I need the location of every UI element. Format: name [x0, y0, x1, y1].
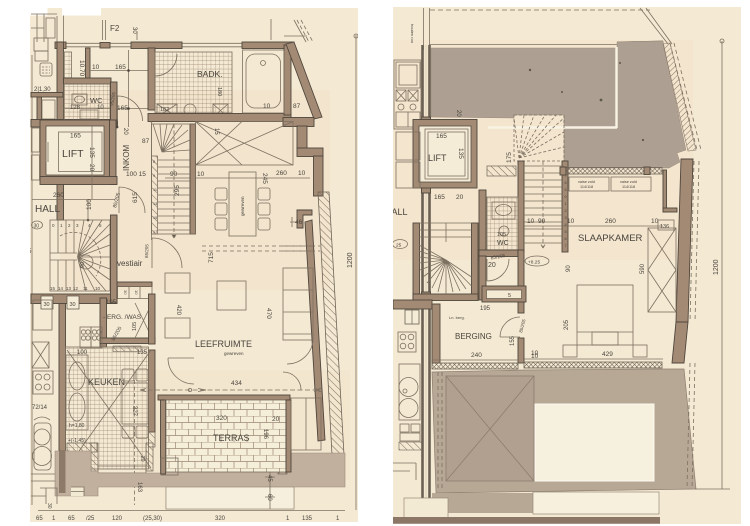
- svg-text:590: 590: [640, 263, 646, 274]
- svg-text:135: 135: [137, 350, 148, 356]
- svg-text:LIFT: LIFT: [428, 153, 447, 163]
- svg-text:INKOM: INKOM: [122, 144, 131, 171]
- svg-text:30: 30: [34, 224, 40, 230]
- svg-text:6: 6: [565, 181, 567, 185]
- svg-text:14: 14: [58, 286, 64, 291]
- svg-text:HALL: HALL: [385, 207, 408, 217]
- svg-text:163: 163: [136, 482, 142, 493]
- svg-text:135: 135: [88, 147, 95, 158]
- svg-text:BERGING: BERGING: [455, 332, 492, 341]
- svg-text:LEEFRUIMTE: LEEFRUIMTE: [195, 339, 252, 349]
- svg-text:/25: /25: [86, 516, 95, 522]
- svg-text:136: 136: [660, 224, 669, 230]
- svg-text:165: 165: [117, 105, 128, 112]
- svg-text:WC: WC: [90, 96, 103, 105]
- svg-text:295: 295: [174, 185, 181, 196]
- svg-text:114/118: 114/118: [622, 185, 635, 189]
- svg-text:TERRAS: TERRAS: [213, 433, 250, 443]
- svg-text:vestiair: vestiair: [117, 259, 143, 268]
- svg-text:260: 260: [276, 170, 287, 177]
- svg-text:KEUKEN: KEUKEN: [88, 377, 125, 387]
- svg-text:30: 30: [70, 302, 76, 308]
- svg-text:10: 10: [92, 64, 100, 71]
- svg-text:10: 10: [298, 170, 306, 177]
- svg-text:434: 434: [231, 380, 242, 387]
- svg-text:10: 10: [651, 218, 659, 225]
- svg-text:10: 10: [95, 286, 101, 291]
- svg-text:5: 5: [508, 293, 511, 299]
- svg-text:72/14: 72/14: [32, 405, 48, 411]
- svg-text:9: 9: [153, 174, 155, 178]
- svg-text:195: 195: [106, 300, 117, 306]
- svg-text:105: 105: [132, 322, 138, 331]
- svg-text:260: 260: [605, 218, 616, 225]
- svg-text:13: 13: [66, 286, 72, 291]
- svg-text:12: 12: [73, 286, 79, 291]
- svg-text:houten roo: houten roo: [410, 24, 415, 44]
- svg-text:90: 90: [80, 262, 86, 268]
- svg-text:h=1,80: h=1,80: [69, 423, 85, 429]
- svg-text:20: 20: [455, 110, 461, 117]
- svg-text:valse zold: valse zold: [578, 180, 595, 184]
- svg-text:F2: F2: [110, 24, 120, 33]
- svg-text:15: 15: [50, 286, 56, 291]
- svg-text:46: 46: [295, 219, 303, 226]
- svg-text:10: 10: [531, 353, 539, 360]
- svg-text:60: 60: [266, 494, 272, 501]
- svg-text:7: 7: [565, 244, 567, 248]
- svg-text:LIFT: LIFT: [62, 148, 84, 160]
- svg-text:205: 205: [564, 319, 570, 330]
- svg-text:196: 196: [262, 429, 268, 440]
- svg-text:65: 65: [36, 516, 43, 522]
- svg-text:615: 615: [132, 192, 139, 203]
- svg-text:245: 245: [261, 173, 268, 184]
- svg-text:15: 15: [213, 128, 219, 135]
- svg-text:15: 15: [153, 216, 157, 220]
- svg-text:Ln. berg.: Ln. berg.: [449, 315, 465, 320]
- svg-text:165: 165: [115, 64, 126, 71]
- svg-text:5: 5: [565, 188, 567, 192]
- svg-text:120: 120: [112, 516, 123, 522]
- svg-text:25: 25: [396, 243, 402, 249]
- svg-text:20: 20: [456, 194, 464, 201]
- svg-text:100 15: 100 15: [126, 171, 146, 178]
- svg-text:10: 10: [134, 290, 139, 295]
- svg-text:13: 13: [153, 202, 157, 206]
- svg-text:175: 175: [506, 152, 513, 163]
- svg-text:87: 87: [142, 138, 150, 145]
- svg-text:valse zold: valse zold: [620, 180, 637, 184]
- svg-text:11: 11: [83, 286, 88, 291]
- svg-text:165: 165: [70, 133, 81, 140]
- svg-text:- ERG. /WAS: - ERG. /WAS: [103, 314, 142, 321]
- svg-text:20: 20: [88, 164, 95, 172]
- svg-text:1200: 1200: [347, 252, 354, 268]
- svg-text:165: 165: [434, 194, 445, 201]
- svg-text:85/205: 85/205: [144, 244, 149, 258]
- svg-text:10: 10: [527, 218, 535, 225]
- svg-text:100: 100: [86, 199, 93, 210]
- svg-text:1200: 1200: [713, 259, 720, 275]
- svg-text:SLAAPKAMER: SLAAPKAMER: [578, 233, 643, 244]
- svg-text:20: 20: [139, 456, 145, 462]
- svg-text:8: 8: [153, 160, 155, 164]
- svg-text:20: 20: [272, 416, 280, 423]
- svg-text:260: 260: [53, 192, 64, 199]
- svg-text:11: 11: [153, 188, 157, 192]
- svg-text:320: 320: [216, 415, 227, 422]
- svg-text:gewreven: gewreven: [240, 196, 245, 216]
- svg-text:87: 87: [293, 103, 301, 110]
- svg-text:240: 240: [471, 352, 482, 359]
- svg-text:195: 195: [480, 306, 491, 312]
- svg-text:20: 20: [488, 262, 496, 269]
- svg-text:6: 6: [565, 237, 567, 241]
- svg-text:105: 105: [497, 232, 506, 238]
- svg-text:1: 1: [565, 202, 567, 206]
- svg-text:30: 30: [131, 27, 137, 34]
- svg-text:2: 2: [565, 209, 567, 213]
- svg-text:128: 128: [70, 105, 81, 111]
- svg-text:114/118: 114/118: [580, 185, 593, 189]
- svg-text:30: 30: [44, 302, 50, 308]
- svg-text:420: 420: [175, 305, 181, 316]
- svg-text:5: 5: [565, 230, 567, 234]
- svg-text:30: 30: [46, 503, 52, 509]
- svg-text:65: 65: [68, 516, 75, 522]
- svg-text:17: 17: [153, 230, 157, 234]
- svg-text:BADK.: BADK.: [197, 69, 223, 79]
- svg-text:135: 135: [457, 148, 464, 159]
- svg-text:10: 10: [567, 218, 575, 225]
- svg-text:182: 182: [160, 107, 169, 113]
- svg-text:10: 10: [197, 171, 205, 178]
- svg-text:715: 715: [208, 252, 215, 263]
- svg-text:10: 10: [263, 103, 271, 110]
- svg-text:WC: WC: [497, 240, 509, 247]
- svg-text:+8.25: +8.25: [528, 260, 540, 266]
- svg-text:320: 320: [215, 516, 226, 522]
- svg-text:gewreven: gewreven: [224, 351, 244, 356]
- svg-text:0: 0: [565, 195, 567, 199]
- svg-text:135: 135: [302, 516, 313, 522]
- svg-text:180: 180: [216, 87, 222, 96]
- svg-text:327: 327: [131, 406, 137, 417]
- svg-text:(25,30): (25,30): [143, 516, 162, 522]
- svg-text:470: 470: [265, 308, 272, 319]
- svg-text:90: 90: [538, 218, 546, 225]
- svg-text:165: 165: [436, 133, 447, 140]
- svg-text:90: 90: [566, 265, 572, 272]
- svg-text:30: 30: [123, 290, 128, 295]
- svg-text:429: 429: [602, 351, 613, 358]
- svg-text:20: 20: [122, 128, 128, 135]
- svg-text:10.70: 10.70: [78, 60, 85, 77]
- svg-text:HALL: HALL: [35, 204, 60, 215]
- svg-text:45: 45: [266, 475, 272, 482]
